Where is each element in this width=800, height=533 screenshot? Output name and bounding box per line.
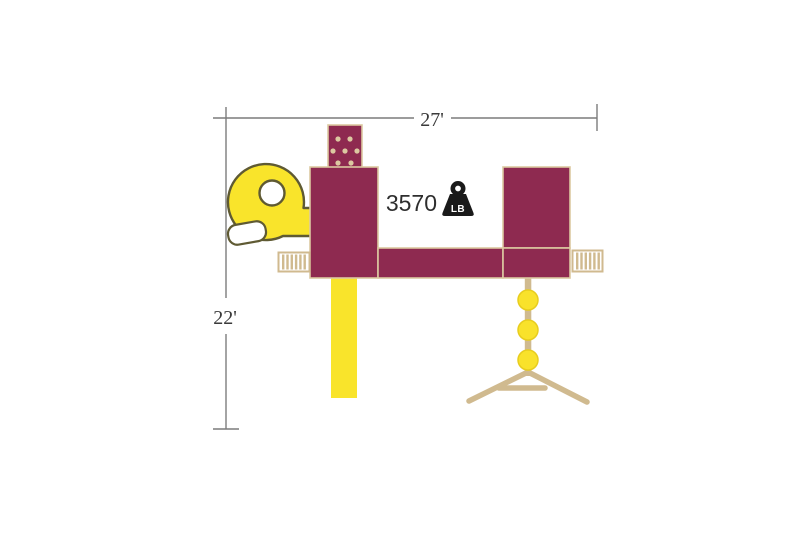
playground-plan-diagram: 27' 22' <box>0 0 800 533</box>
ladder-rung <box>598 253 600 270</box>
ladder-rung <box>295 255 297 270</box>
ladder-rung <box>589 253 591 270</box>
hold-dot <box>335 136 340 141</box>
playground-structure <box>227 125 603 402</box>
hold-dot <box>347 136 352 141</box>
ladder-rung <box>593 253 595 270</box>
ladder-rung <box>304 255 306 270</box>
hold-dot <box>342 148 347 153</box>
weight-unit-label: LB <box>451 204 465 215</box>
diagram-page: 27' 22' <box>0 0 800 533</box>
climbing-wall-panel <box>328 125 362 168</box>
weight-callout: 3570 LB <box>386 183 474 216</box>
ladder-rung <box>286 255 288 270</box>
straight-slide <box>331 277 357 398</box>
bridge-deck <box>378 248 503 278</box>
ladder-right <box>573 251 603 272</box>
hold-dot <box>330 148 335 153</box>
ladder-rung <box>282 255 284 270</box>
width-dim-label: 27' <box>420 109 444 131</box>
ladder-left <box>279 253 310 272</box>
ladder-rung <box>299 255 301 270</box>
hold-dot <box>348 160 353 165</box>
height-dim-label: 22' <box>213 307 237 329</box>
spiral-slide <box>227 164 312 246</box>
ladder-rung <box>580 253 582 270</box>
weight-icon: LB <box>442 183 474 216</box>
climber-pod-2 <box>518 320 538 340</box>
ladder-rung <box>291 255 293 270</box>
pod-climber <box>469 278 587 402</box>
left-tower-deck <box>310 167 378 278</box>
right-deck-extension <box>503 248 570 278</box>
width-dimension: 27' <box>213 104 597 131</box>
height-dimension: 22' <box>213 107 239 429</box>
right-tower-deck <box>503 167 570 248</box>
weight-icon-handle <box>453 183 463 193</box>
spiral-slide-center-hole <box>260 181 285 206</box>
climbing-wall-panel-board <box>328 125 362 168</box>
ladder-rung <box>585 253 587 270</box>
hold-dot <box>354 148 359 153</box>
climber-pod-1 <box>518 290 538 310</box>
spiral-slide-exit-chute <box>227 220 268 246</box>
hold-dot <box>335 160 340 165</box>
weight-value: 3570 <box>386 190 437 216</box>
climber-pod-3 <box>518 350 538 370</box>
ladder-rung <box>576 253 578 270</box>
